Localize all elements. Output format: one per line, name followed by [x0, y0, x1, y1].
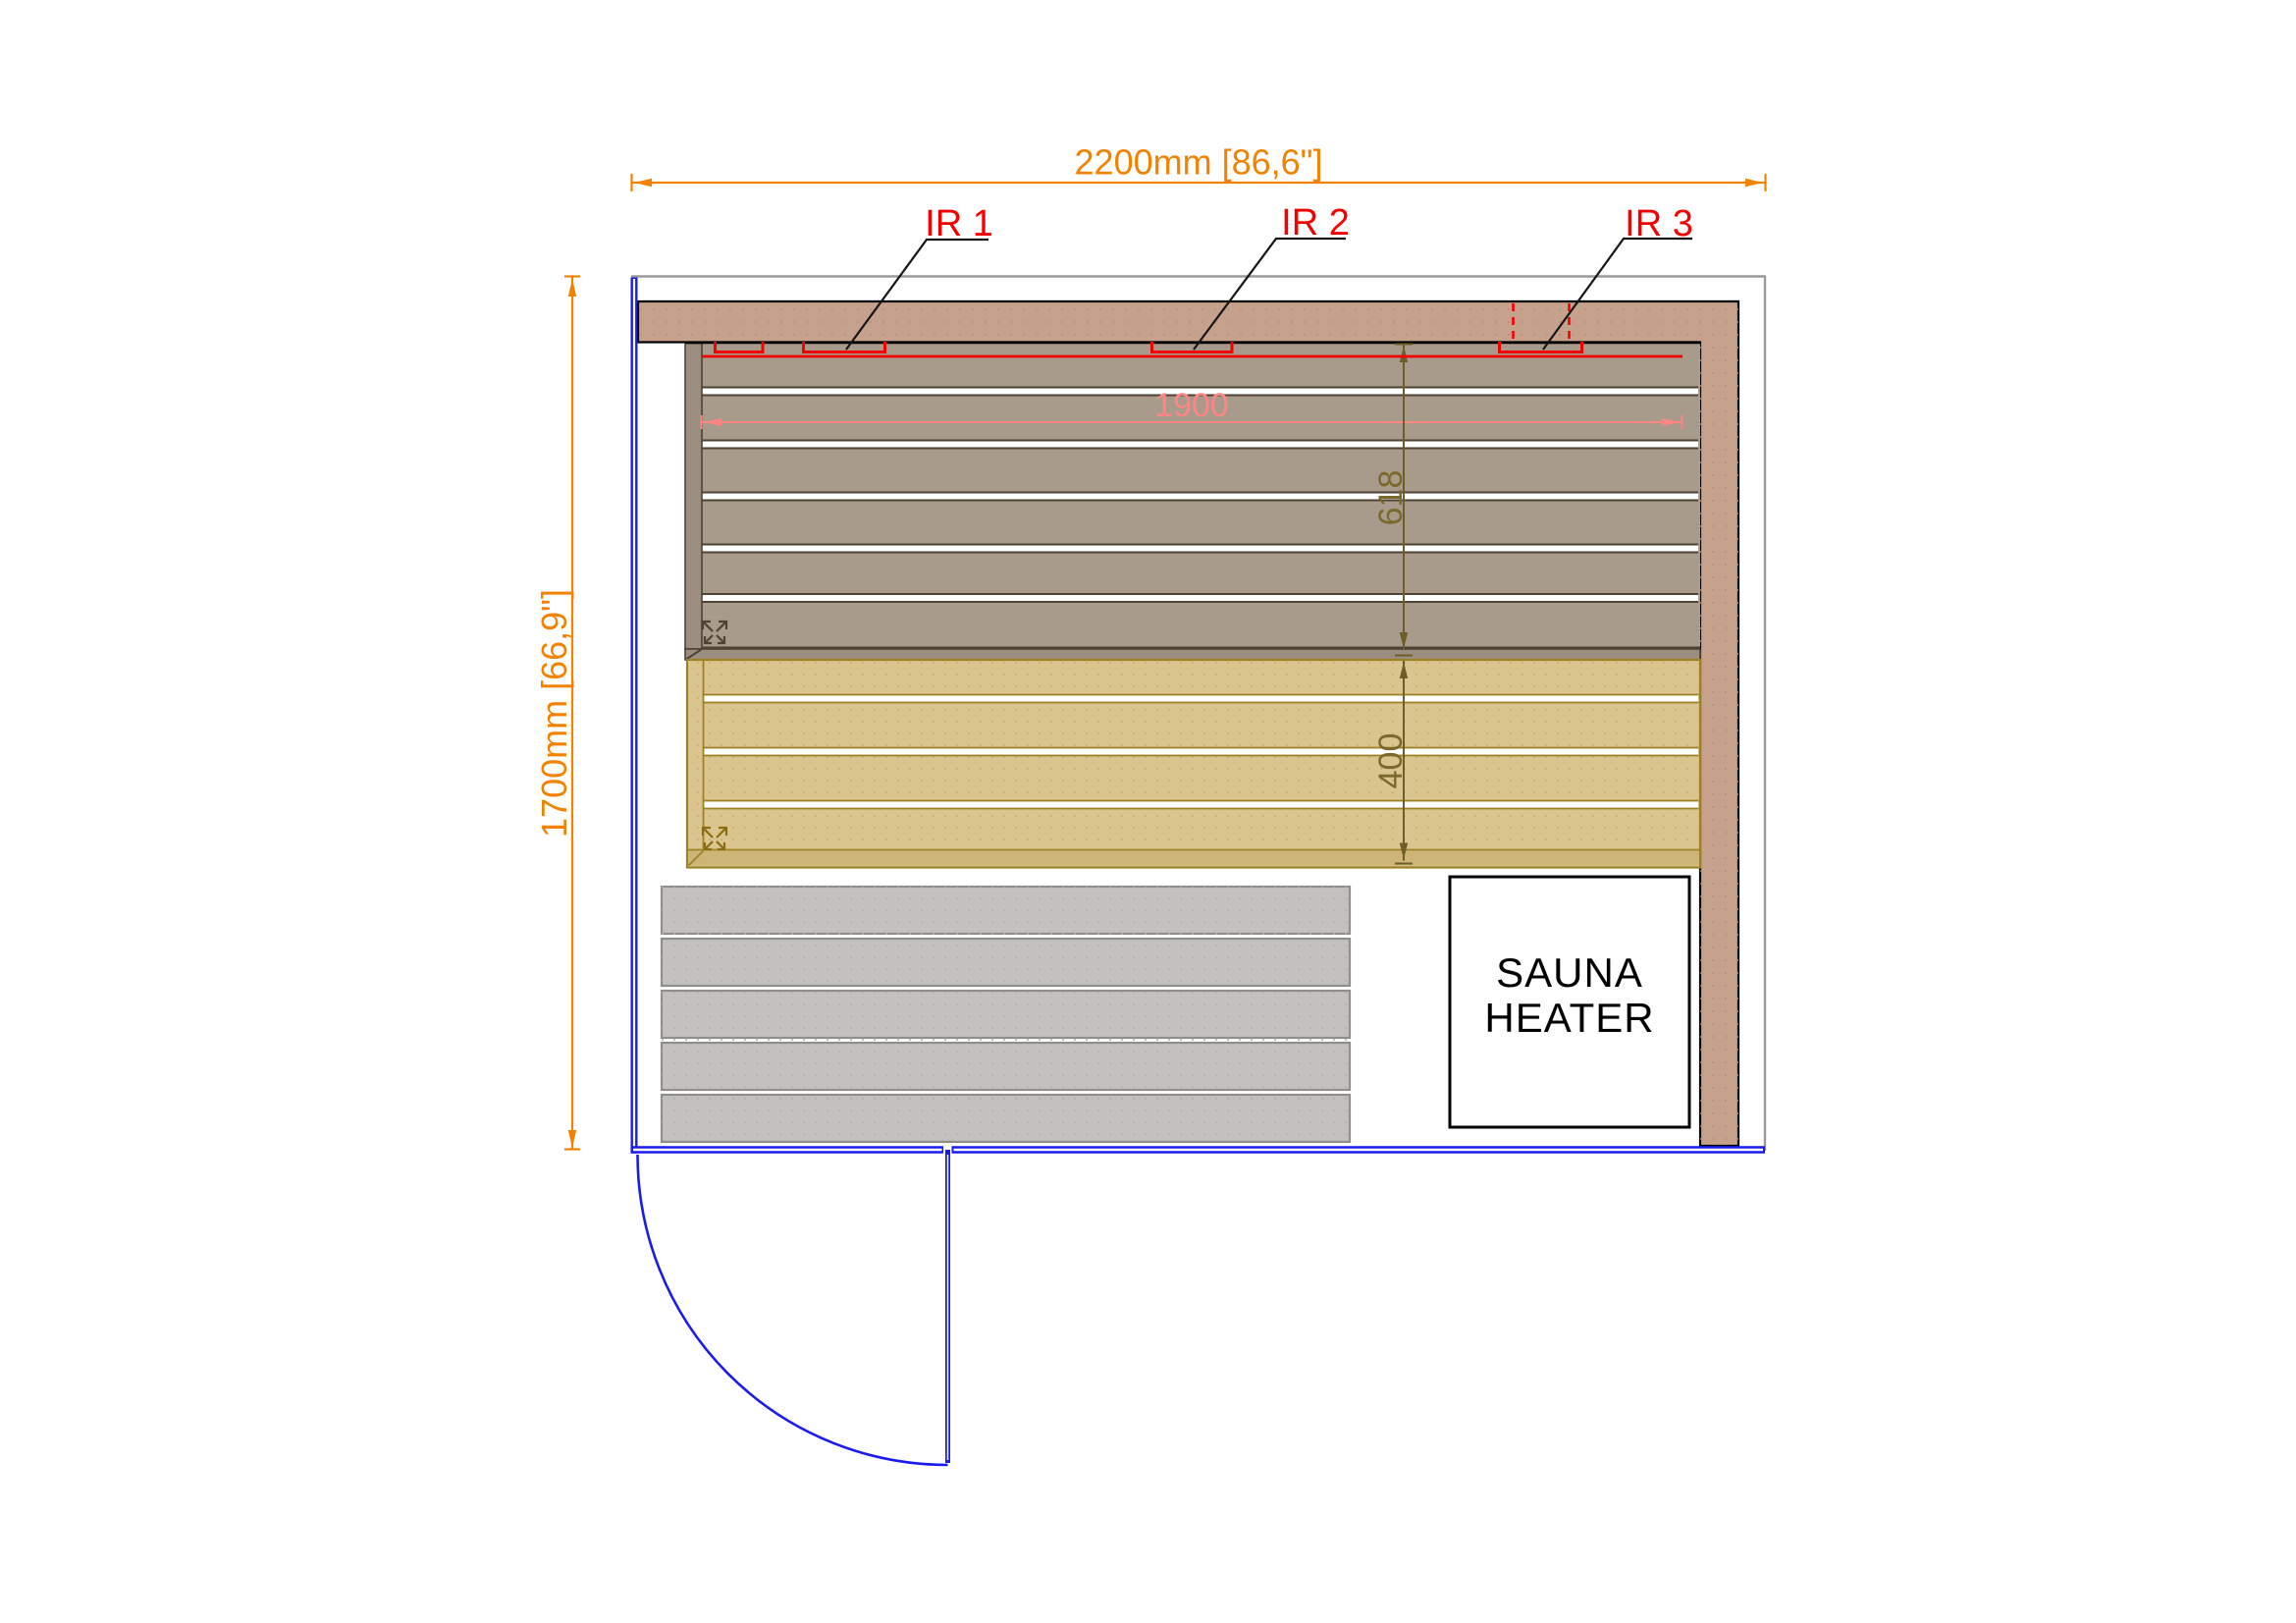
ir2-label: IR 2 — [1281, 202, 1350, 243]
floor-planks — [662, 887, 1350, 1142]
dim-400-text: 400 — [1372, 733, 1410, 789]
lower-bench-front-rail — [688, 851, 1699, 866]
dim-depth-arrow-bottom — [568, 1130, 576, 1148]
ir1-label: IR 1 — [925, 203, 993, 244]
dimension-overall-depth: 1700mm [66,9"] — [534, 277, 580, 1151]
dim-width-arrow-left — [634, 179, 652, 187]
dim-width-text: 2200mm [86,6"] — [1075, 142, 1323, 183]
dimension-overall-width: 2200mm [86,6"] — [632, 142, 1766, 192]
ir3-label: IR 3 — [1625, 203, 1693, 244]
upper-bench-left-rail — [685, 344, 702, 650]
dim-width-arrow-right — [1745, 179, 1763, 187]
lower-bench-texture — [688, 661, 1699, 866]
dim-618-text: 618 — [1372, 470, 1410, 526]
floor-plank-texture — [662, 887, 1350, 1142]
sauna-floor-plan-drawing: SAUNA HEATER 2200mm [86,6"] 1700mm [66,9… — [0, 0, 2296, 1623]
lower-bench — [687, 660, 1700, 868]
door — [638, 1150, 948, 1465]
dim-bench-length-text: 1900 — [1154, 387, 1229, 424]
sauna-heater-label-line1: SAUNA — [1496, 949, 1643, 996]
dim-depth-text: 1700mm [66,9"] — [534, 589, 574, 838]
upper-bench-front-rail — [685, 649, 1700, 660]
sauna-plan-page: SAUNA HEATER 2200mm [86,6"] 1700mm [66,9… — [0, 0, 2296, 1623]
sauna-heater-label-line2: HEATER — [1484, 995, 1654, 1041]
door-swing-arc — [638, 1155, 948, 1465]
dim-depth-arrow-top — [568, 279, 576, 297]
sauna-heater: SAUNA HEATER — [1450, 877, 1689, 1127]
